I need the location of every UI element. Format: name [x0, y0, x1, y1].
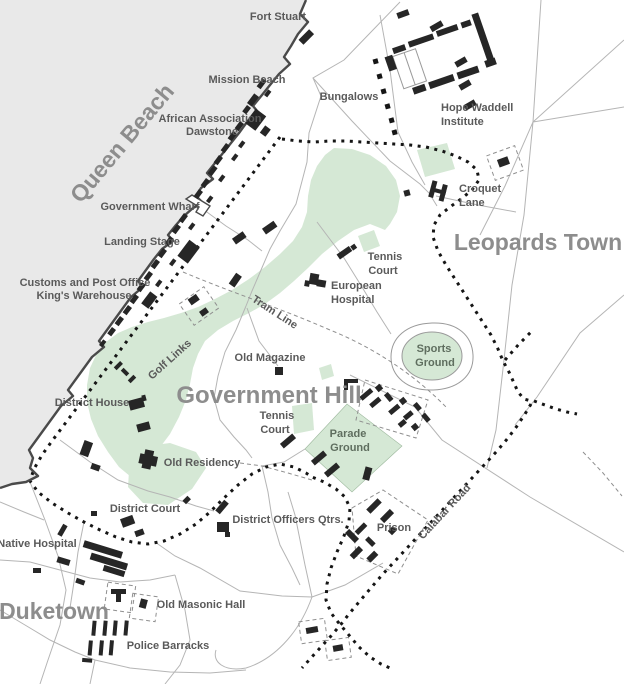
label-sports-ground-1: Sports: [417, 343, 452, 355]
historical-map-canvas: Fort Stuart Mission Beach African Associ…: [0, 0, 624, 684]
label-police-barracks: Police Barracks: [127, 640, 210, 652]
label-tram-line: Tram Line: [250, 293, 300, 331]
sports-ground-green: [402, 332, 462, 380]
label-european-hospital-1: European: [331, 280, 382, 292]
label-parade-ground-1: Parade: [330, 428, 367, 440]
small-green-patch: [319, 364, 334, 380]
croquet-lane-building: [428, 180, 448, 202]
east-branch-dotted: [534, 401, 577, 414]
label-european-hospital-2: Hospital: [331, 294, 374, 306]
label-government-wharf: Government Wharf: [100, 201, 199, 213]
label-government-hill: Government Hill: [176, 382, 361, 409]
label-district-house: District House: [55, 397, 130, 409]
label-tennis-lower-1: Tennis: [260, 410, 295, 422]
label-landing-stage: Landing Stage: [104, 236, 180, 248]
croquet-branch-dotted: [505, 331, 532, 360]
label-native-hospital: Native Hospital: [0, 538, 77, 550]
label-tennis-upper-1: Tennis: [368, 251, 403, 263]
label-old-magazine: Old Magazine: [235, 352, 306, 364]
label-old-masonic-hall: Old Masonic Hall: [157, 599, 246, 611]
label-croquet-1: Croquet: [459, 183, 502, 195]
label-tennis-lower-2: Court: [260, 424, 290, 436]
label-district-officers-qtrs: District Officers Qtrs.: [232, 514, 343, 526]
label-mission-beach: Mission Beach: [208, 74, 285, 86]
police-barracks-buildings: [82, 617, 129, 666]
label-fort-stuart: Fort Stuart: [250, 11, 307, 23]
label-hope-waddell-2: Institute: [441, 116, 484, 128]
label-sports-ground-2: Ground: [415, 357, 455, 369]
label-bungalows: Bungalows: [320, 91, 379, 103]
label-african-association-2: Dawstone: [186, 126, 238, 138]
label-croquet-2: Lane: [459, 197, 485, 209]
label-hope-waddell-1: Hope Waddell: [441, 102, 513, 114]
old-magazine-building: [275, 367, 283, 375]
tennis-court-upper-green: [358, 230, 380, 252]
european-hospital-building: [304, 272, 327, 289]
label-duketown: Duketown: [0, 598, 109, 624]
label-african-association-1: African Association: [159, 113, 262, 125]
label-customs-2: King's Warehouse: [36, 290, 131, 302]
label-district-court: District Court: [110, 503, 181, 515]
label-parade-ground-2: Ground: [330, 442, 370, 454]
label-prison: Prison: [377, 522, 412, 534]
label-old-residency: Old Residency: [164, 457, 241, 469]
label-tennis-upper-2: Court: [368, 265, 398, 277]
label-calabar-road: Calabar Road: [416, 482, 473, 542]
label-leopards-town: Leopards Town: [454, 229, 622, 255]
label-customs-1: Customs and Post Office: [20, 277, 151, 289]
